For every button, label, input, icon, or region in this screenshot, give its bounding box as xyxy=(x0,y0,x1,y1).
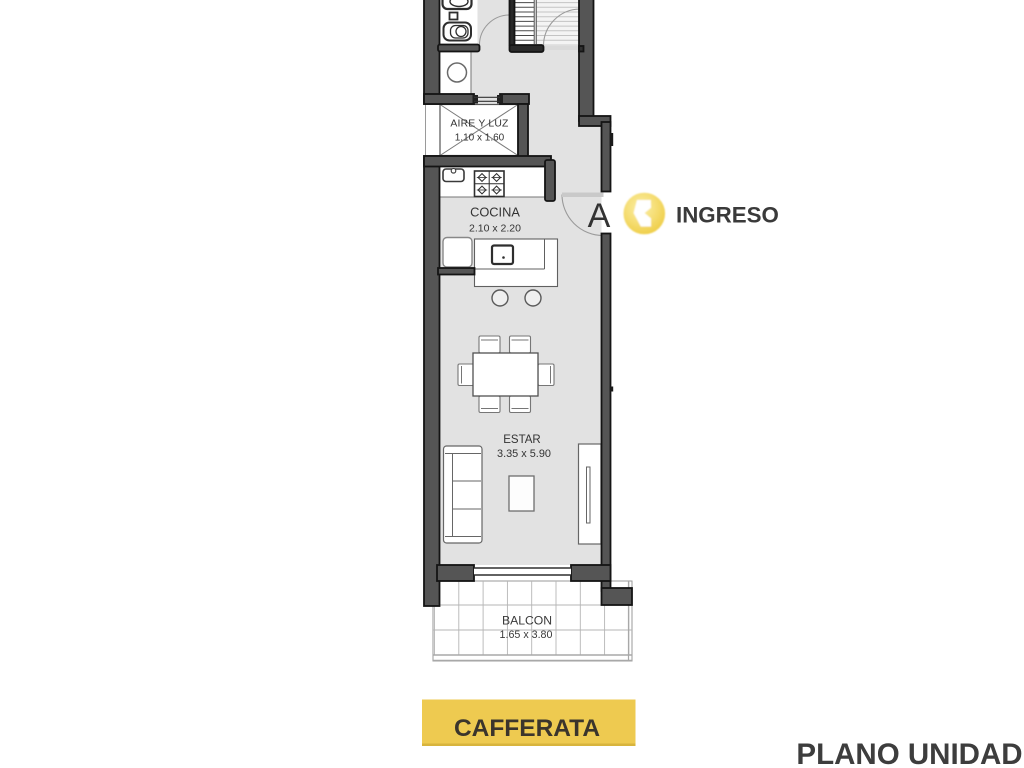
svg-text:INGRESO: INGRESO xyxy=(676,203,779,228)
svg-text:ESTAR: ESTAR xyxy=(503,434,541,446)
svg-text:A: A xyxy=(588,197,611,235)
svg-text:AIRE Y LUZ: AIRE Y LUZ xyxy=(450,119,509,130)
svg-text:PLANO UNIDAD: PLANO UNIDAD xyxy=(796,738,1022,768)
svg-text:CAFFERATA: CAFFERATA xyxy=(454,715,600,742)
svg-text:1.65 x 3.80: 1.65 x 3.80 xyxy=(500,629,553,641)
svg-text:2.10 x 2.20: 2.10 x 2.20 xyxy=(469,223,521,235)
svg-text:BALCON: BALCON xyxy=(502,614,552,628)
svg-text:1.10 x 1.60: 1.10 x 1.60 xyxy=(455,133,505,144)
svg-text:3.35 x 5.90: 3.35 x 5.90 xyxy=(497,448,551,460)
svg-text:COCINA: COCINA xyxy=(470,205,520,220)
